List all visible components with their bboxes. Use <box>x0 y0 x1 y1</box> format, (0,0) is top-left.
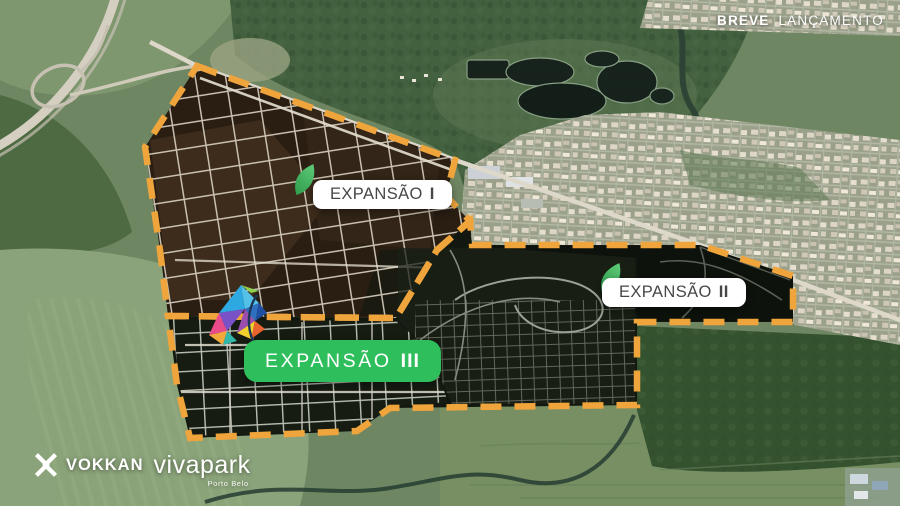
brand-location: Porto Belo <box>208 479 249 488</box>
teaser-bold: BREVE <box>717 13 770 28</box>
region-word: EXPANSÃO <box>330 185 423 204</box>
region-label-expansao-2: EXPANSÃO II <box>602 278 746 307</box>
region-numeral: I <box>430 185 435 204</box>
vokkan-x-icon <box>33 452 59 478</box>
region-numeral: II <box>719 283 729 302</box>
satellite-map <box>0 0 900 506</box>
region-numeral: III <box>401 350 420 373</box>
teaser-regular: LANÇAMENTO <box>778 13 884 28</box>
promo-map-screenshot: BREVE LANÇAMENTO EXPANSÃO I EXPANSÃO II … <box>0 0 900 506</box>
region-word: EXPANSÃO <box>265 350 392 373</box>
region-label-expansao-3: EXPANSÃO III <box>244 340 441 382</box>
brand-product: vivapark <box>154 451 251 479</box>
region-word: EXPANSÃO <box>619 283 712 302</box>
brand-logo: VOKKAN vivapark Porto Belo <box>33 452 251 478</box>
brand-company: VOKKAN <box>66 456 144 475</box>
region-label-expansao-1: EXPANSÃO I <box>313 180 452 209</box>
teaser-text: BREVE LANÇAMENTO <box>717 13 884 28</box>
